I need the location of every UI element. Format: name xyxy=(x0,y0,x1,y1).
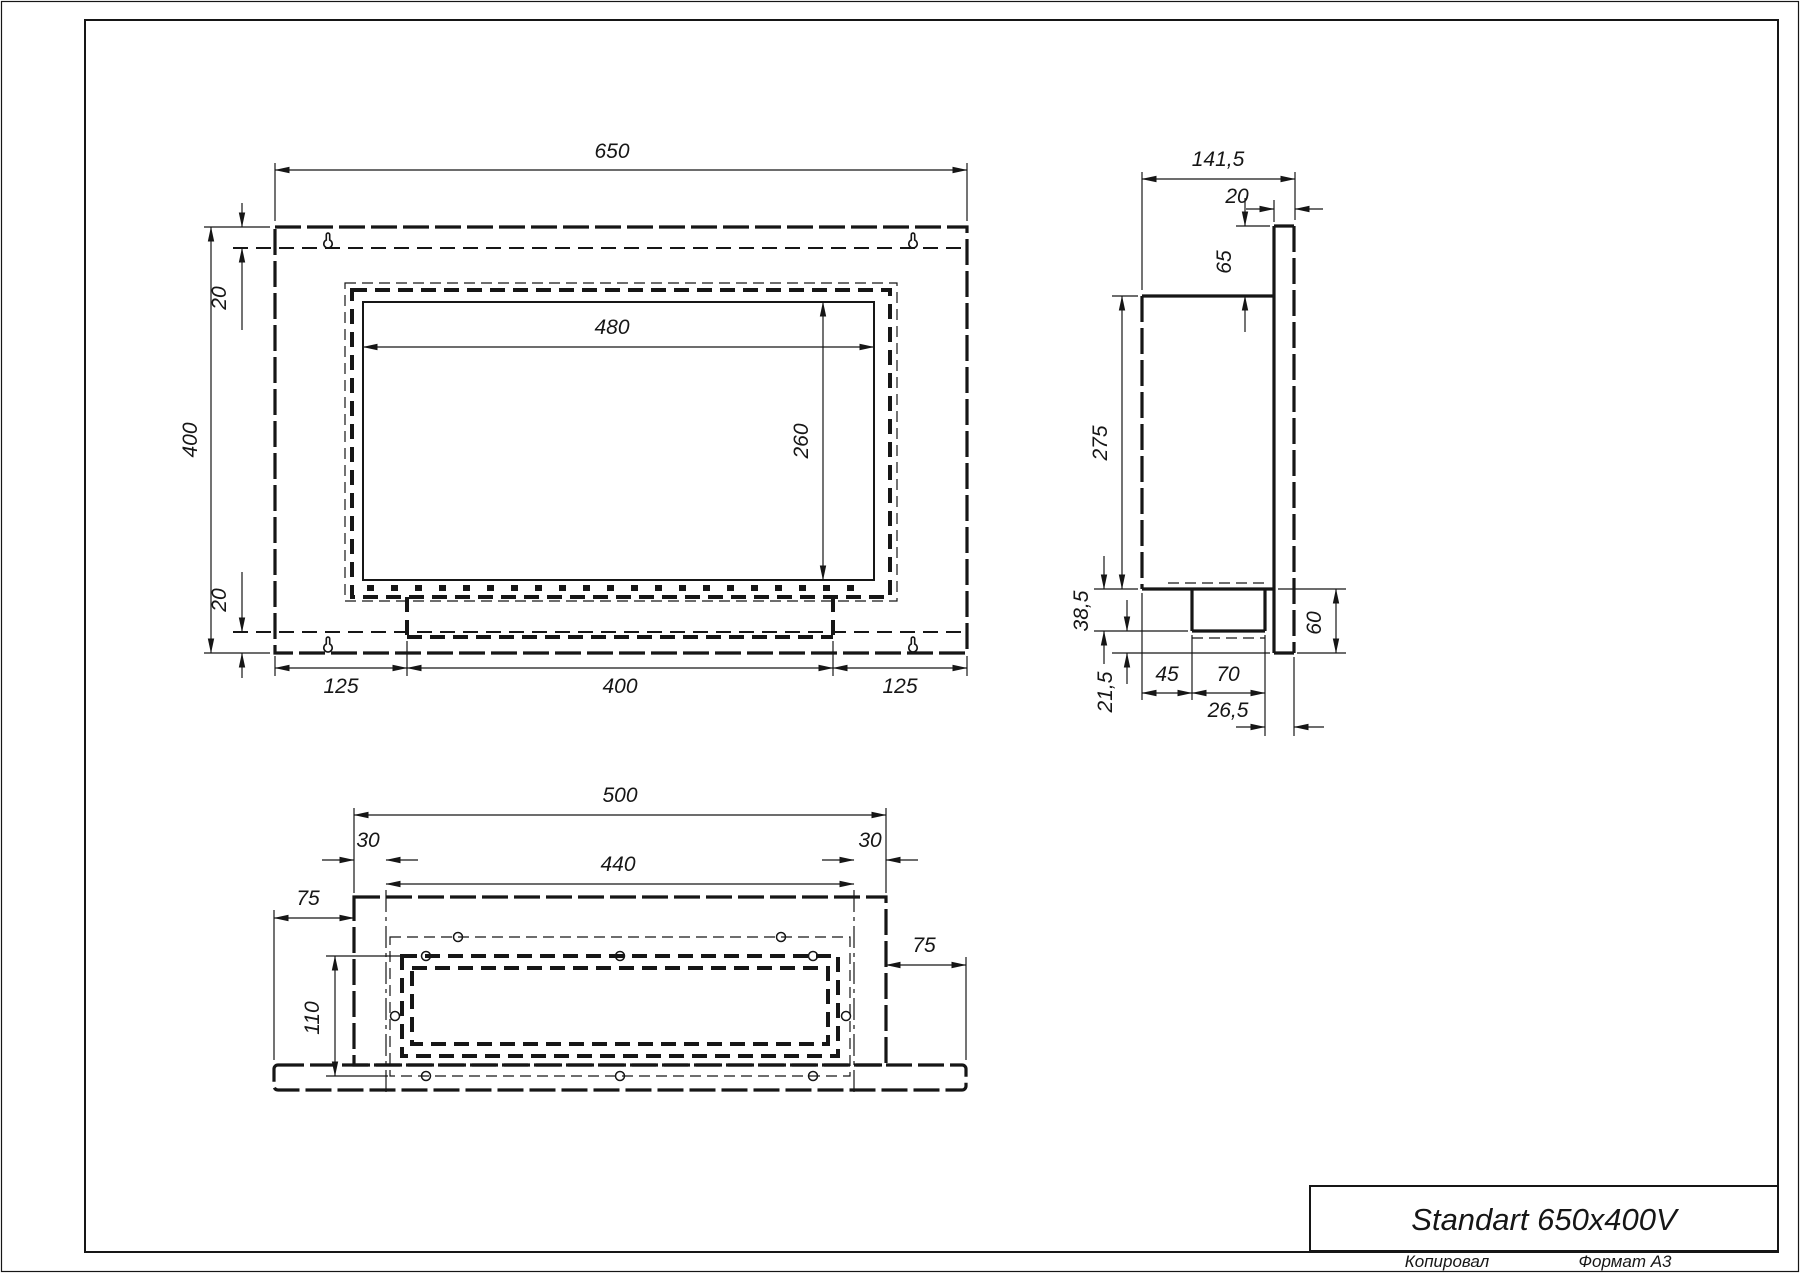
front-dim-20-bottom: 20 xyxy=(208,572,242,678)
side-dim-70-label: 70 xyxy=(1216,663,1240,686)
keyhole-icon xyxy=(324,637,332,652)
front-dim-400-center-label: 400 xyxy=(602,675,637,698)
side-dim-275: 275 xyxy=(1089,296,1138,589)
front-dim-bottom-row: 125 400 125 xyxy=(275,641,967,698)
keyhole-icon xyxy=(324,233,332,248)
bottom-dim-75-right: 75 xyxy=(886,934,966,1060)
technical-drawing: 650 400 20 20 480 260 xyxy=(0,0,1800,1273)
drawing-sheet: 650 400 20 20 480 260 xyxy=(0,0,1800,1273)
side-dim-60-label: 60 xyxy=(1303,611,1326,635)
bottom-dim-500: 500 xyxy=(354,784,886,893)
front-dim-400-height-label: 400 xyxy=(179,422,202,457)
side-dim-60: 60 xyxy=(1278,589,1346,653)
front-dim-125-left-label: 125 xyxy=(323,675,358,698)
bottom-dim-30-left-label: 30 xyxy=(356,829,380,852)
side-dim-65-label: 65 xyxy=(1213,250,1236,274)
side-dim-21-5-label: 21,5 xyxy=(1094,671,1117,713)
side-dim-21-5: 21,5 xyxy=(1094,600,1270,713)
footer-copied-label: Копировал xyxy=(1405,1252,1490,1271)
bottom-dim-110-label: 110 xyxy=(301,1001,324,1035)
bottom-dim-30-right-label: 30 xyxy=(858,829,882,852)
front-dim-20-bottom-label: 20 xyxy=(208,588,231,613)
side-dim-38-5: 38,5 xyxy=(1070,556,1188,664)
bottom-dim-110: 110 xyxy=(301,956,400,1076)
side-burner-box xyxy=(1192,589,1265,638)
side-dim-38-5-label: 38,5 xyxy=(1070,590,1093,631)
bottom-dim-75-right-label: 75 xyxy=(912,934,936,957)
side-dim-275-label: 275 xyxy=(1089,425,1112,461)
front-dim-480-label: 480 xyxy=(594,316,629,339)
side-dim-45-label: 45 xyxy=(1155,663,1179,686)
front-dim-650: 650 xyxy=(275,140,967,221)
bottom-flange-strip xyxy=(274,1065,966,1090)
front-dim-125-right-label: 125 xyxy=(882,675,917,698)
side-view: 141,5 20 65 275 38,5 xyxy=(1070,148,1346,736)
title-block: Standart 650x400V xyxy=(1310,1186,1778,1251)
bottom-dim-30-right: 30 xyxy=(822,829,918,860)
front-dim-20-top-label: 20 xyxy=(208,286,231,311)
keyhole-icon xyxy=(909,233,917,248)
front-dim-260: 260 xyxy=(790,302,823,580)
bottom-box-outline xyxy=(354,897,886,1065)
bottom-dim-440-label: 440 xyxy=(600,853,635,876)
front-dim-20-top: 20 xyxy=(208,203,242,330)
side-dim-20: 20 xyxy=(1224,185,1323,222)
bottom-view: 500 30 440 30 75 75 xyxy=(274,784,966,1095)
front-dim-260-label: 260 xyxy=(790,423,813,459)
side-dim-141-5-label: 141,5 xyxy=(1192,148,1245,171)
bottom-dim-440: 440 xyxy=(386,853,854,884)
side-dim-65: 65 xyxy=(1213,198,1270,332)
front-dim-650-label: 650 xyxy=(594,140,629,163)
bottom-dim-500-label: 500 xyxy=(602,784,637,807)
sheet-footer: Копировал Формат А3 xyxy=(1405,1252,1672,1271)
title-block-product-name: Standart 650x400V xyxy=(1411,1202,1680,1237)
page-frame xyxy=(2,2,1799,1272)
side-dim-26-5-label: 26,5 xyxy=(1207,699,1249,722)
bottom-dim-75-left-label: 75 xyxy=(296,887,320,910)
footer-format-label: Формат А3 xyxy=(1578,1252,1672,1271)
front-view: 650 400 20 20 480 260 xyxy=(179,140,967,698)
front-dim-480: 480 xyxy=(363,316,874,347)
bottom-dim-30-left: 30 xyxy=(322,829,418,860)
keyhole-icon xyxy=(909,637,917,652)
